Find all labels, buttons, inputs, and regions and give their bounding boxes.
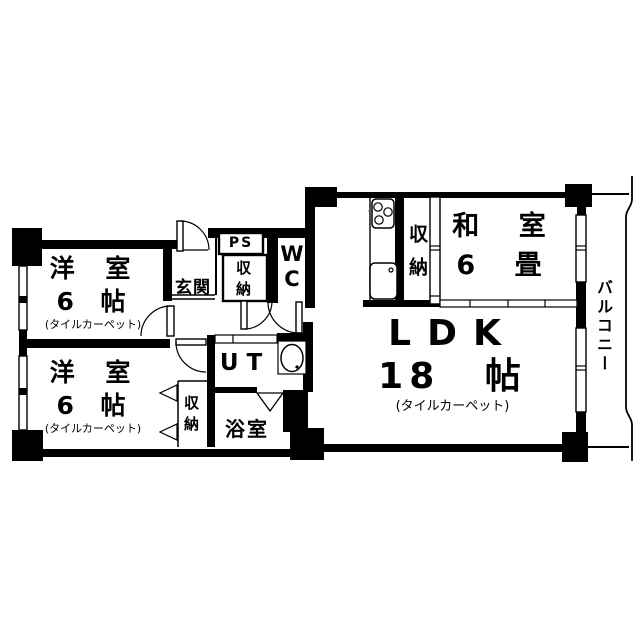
washbasin-icon [278,341,306,374]
room-label-hall-closet: 収納 [233,258,254,304]
room-label-kitchen-closet: 収納 [404,209,431,304]
room-name: 洋 室 [24,252,162,286]
wall-bath-east [283,390,308,432]
wall-step-vertical [305,197,315,308]
room-name: 洋 室 [24,356,162,390]
balcony-rail [626,176,632,461]
stove-icon [369,199,395,228]
wall-bottom-east [324,444,564,452]
room-label-pipe-space: PS [219,235,263,251]
room-label-bathroom: 浴室 [210,413,284,442]
wall-top-east [335,192,567,198]
wall-bedroom-divider [22,339,170,348]
room-label-utility: UT [212,350,278,376]
bedroom-bottom-door-arc [176,342,206,372]
room-label-wc: WC [278,242,306,292]
room-label-ldk: LDK 18 帖 (タイルカーペット) [330,312,575,416]
wall-corner-bottom-mid [290,428,324,460]
room-label-japanese: 和 室 6 畳 [432,207,574,285]
wall-closet-wc [267,228,278,303]
wc-door-leaf [296,302,302,333]
room-name: 和 室 [432,207,574,247]
room-size: 6 帖 [24,286,162,318]
room-label-western-top: 洋 室 6 帖 (タイルカーペット) [24,252,162,332]
kitchen-sink-icon [370,263,397,299]
room-size: 6 帖 [24,390,162,422]
wall-bath-top [213,387,257,393]
entrance-door-arc [180,221,209,250]
wall-right-seg3 [576,412,586,434]
wall-top-west [42,240,178,249]
wc-door-arc [268,302,299,333]
utility-sliding-door [215,335,277,343]
floorplan-canvas: 洋 室 6 帖 (タイルカーペット) 洋 室 6 帖 (タイルカーペット) 和 … [0,0,639,640]
room-label-western-bottom: 洋 室 6 帖 (タイルカーペット) [24,356,162,436]
bedroom-top-door-leaf [167,306,174,336]
wall-corner-top-right [565,184,592,207]
room-finish: (タイルカーペット) [24,318,162,332]
wall-corner-bottom-right [562,432,588,462]
closet-folding-door-icons [160,385,177,440]
room-label-entrance: 玄関 [168,273,218,298]
hall-closet-door-leaf [241,301,247,329]
room-name: LDK [330,312,575,356]
room-finish: (タイルカーペット) [330,398,575,416]
bedroom-bottom-door-leaf [176,339,206,345]
entrance-door-leaf [177,221,183,251]
room-size: 18 帖 [330,356,575,398]
room-label-balcony: バルコニー [591,266,615,386]
room-size: 6 畳 [432,247,574,285]
wall-bottom-west [43,449,290,457]
room-finish: (タイルカーペット) [24,422,162,436]
window-washitsu [576,215,586,282]
room-label-bedroom-closet: 収納 [181,387,202,445]
bathroom-folding-door-icon [257,393,283,411]
